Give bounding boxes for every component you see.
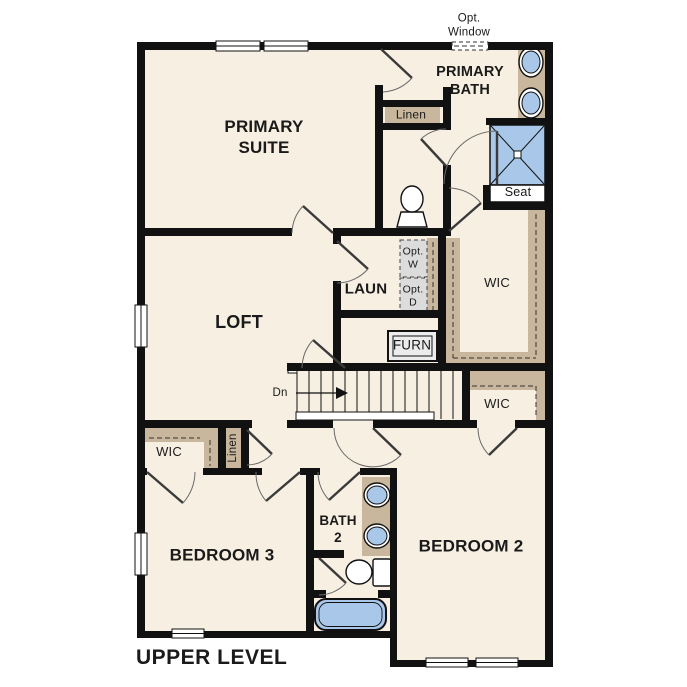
- sink-primary-2: [519, 88, 543, 118]
- window: [172, 629, 204, 638]
- room-label-loft: LOFT: [215, 311, 263, 334]
- stair-handrail: [296, 412, 434, 420]
- window: [135, 533, 147, 575]
- shower-seat-label: Seat: [505, 185, 532, 201]
- sink-bath2-2: [364, 524, 390, 548]
- opt-dryer-label: Opt. D: [403, 283, 424, 308]
- window: [135, 305, 147, 347]
- sink-primary-1: [519, 47, 543, 77]
- window: [426, 658, 468, 667]
- closet-label-wic-primary: WIC: [484, 275, 510, 291]
- room-label-laundry: LAUN: [345, 281, 387, 300]
- stairs-down-label: Dn: [272, 386, 287, 400]
- closet-label-linen-hall: Linen: [226, 433, 240, 462]
- bathtub: [315, 599, 386, 630]
- furnace-label: FURN: [393, 338, 431, 355]
- opt-window-label: Opt. Window: [448, 12, 490, 41]
- window: [476, 658, 518, 667]
- room-label-bedroom3: BEDROOM 3: [170, 544, 275, 565]
- plan-title: UPPER LEVEL: [136, 646, 287, 670]
- optional-window: [452, 42, 488, 50]
- closet-label-linen-primary: Linen: [396, 108, 426, 123]
- shower-drain: [514, 151, 521, 158]
- room-label-primary-suite: PRIMARY SUITE: [224, 116, 303, 159]
- closet-label-wic-bedroom2: WIC: [484, 396, 510, 412]
- floor-plan-drawing: [0, 0, 687, 687]
- sink-bath2-1: [364, 483, 390, 507]
- window: [264, 41, 308, 51]
- room-label-primary-bath: PRIMARY BATH: [436, 63, 504, 99]
- room-label-bedroom2: BEDROOM 2: [419, 535, 524, 556]
- window: [216, 41, 260, 51]
- closet-label-wic-bedroom3: WIC: [156, 444, 182, 460]
- room-label-bath2: BATH 2: [319, 513, 356, 547]
- opt-washer-label: Opt. W: [403, 245, 424, 270]
- floor-plan-canvas: Opt. Window PRIMARY SUITE PRIMARY BATH L…: [0, 0, 687, 687]
